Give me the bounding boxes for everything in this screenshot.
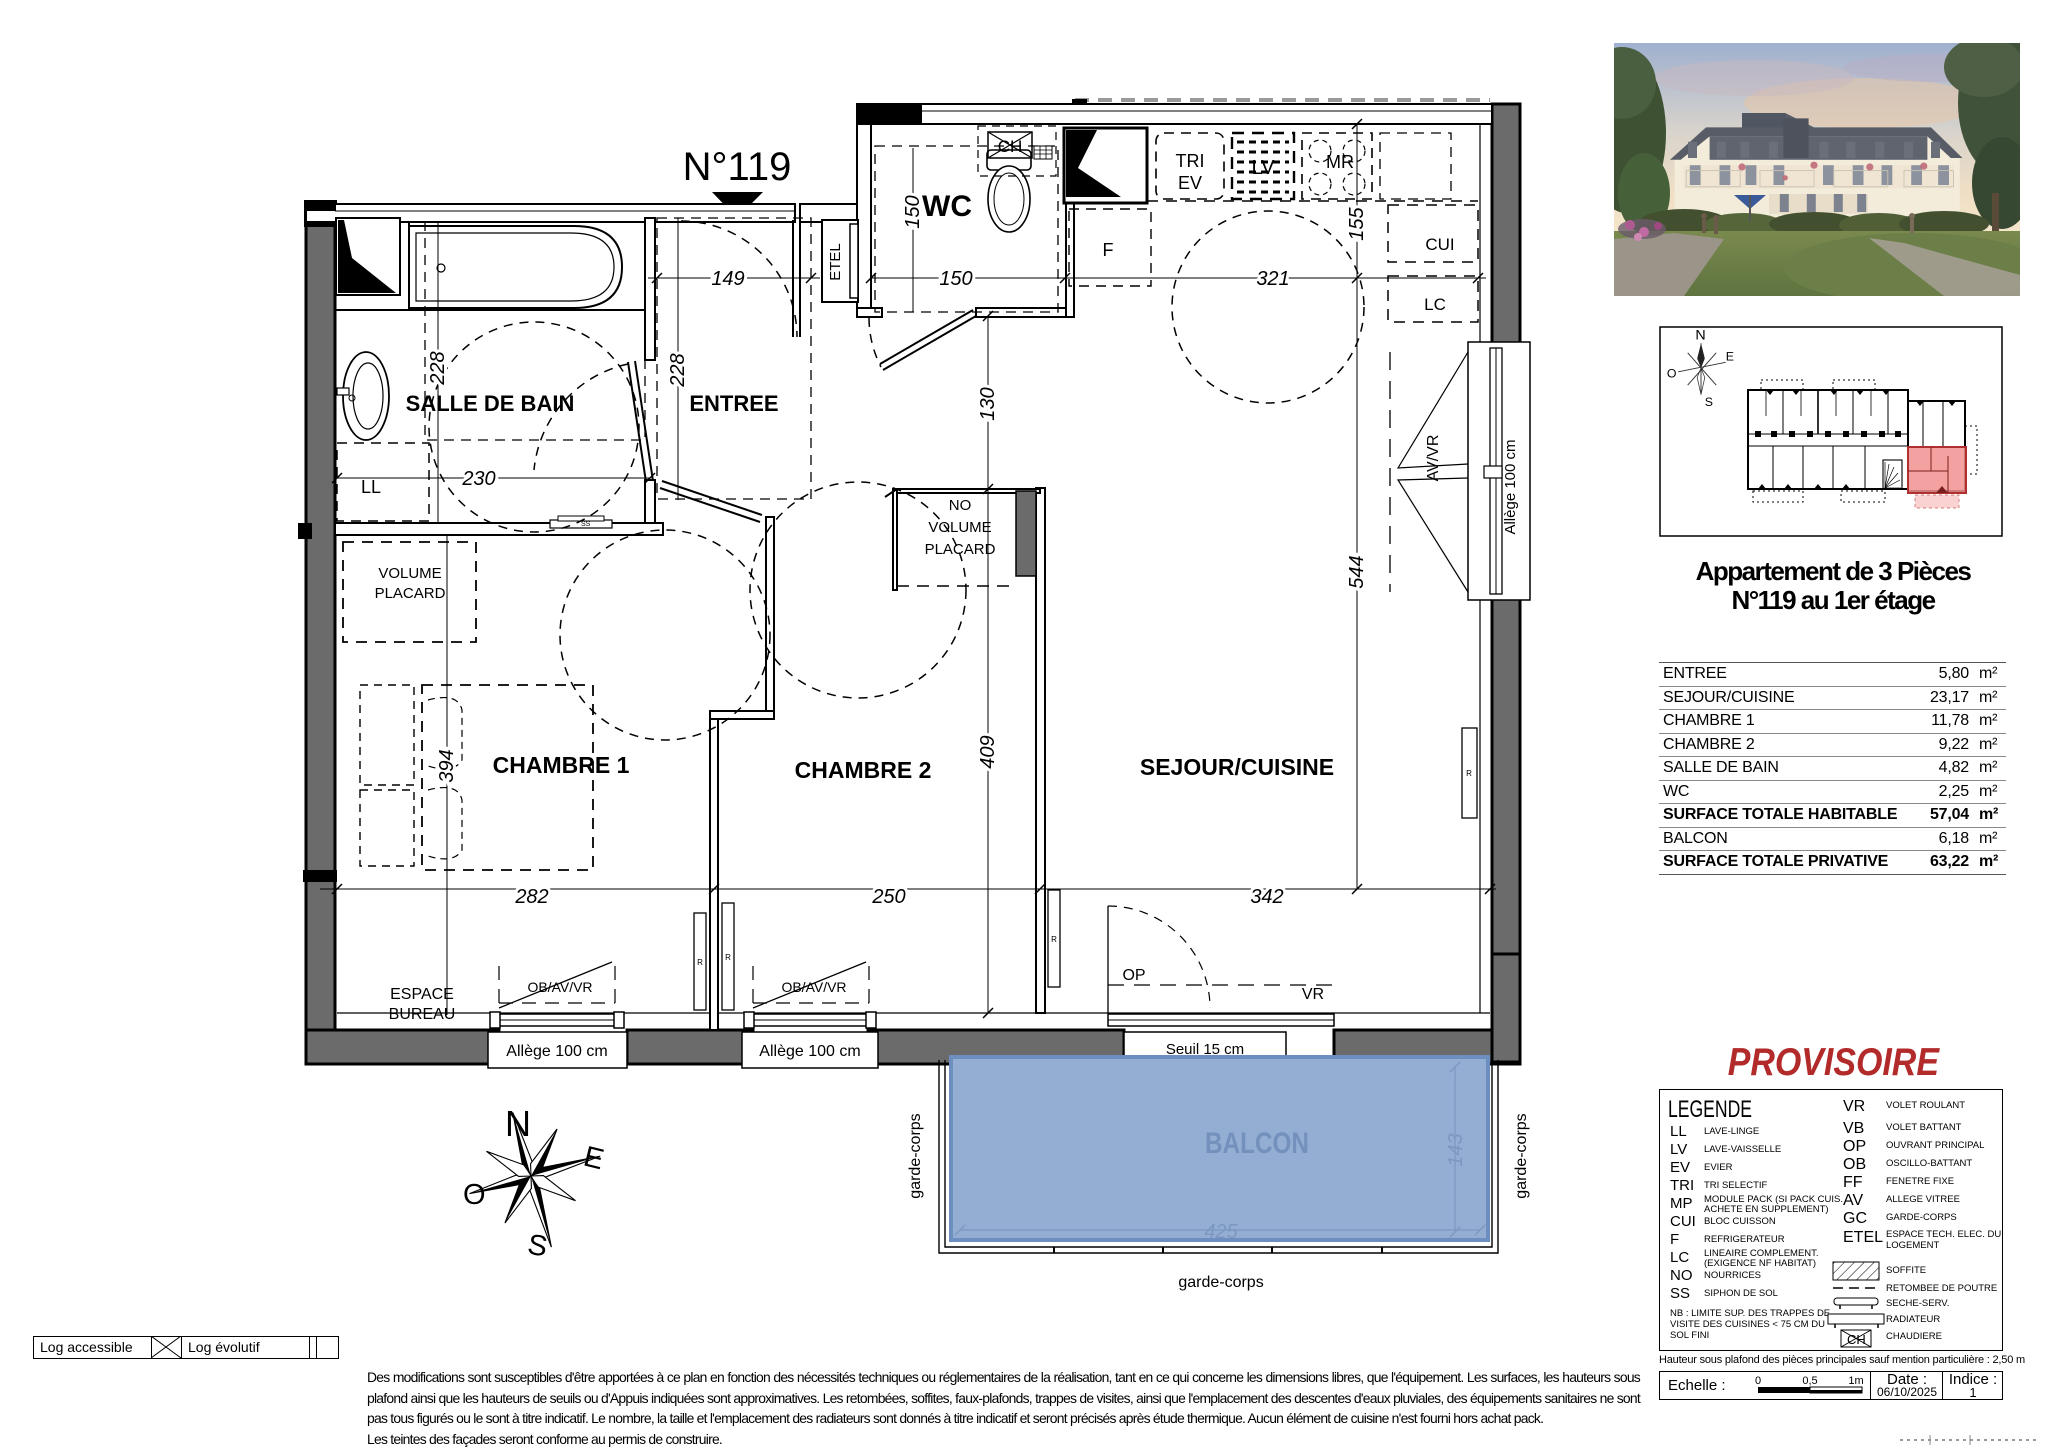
svg-text:PLACARD: PLACARD [375, 585, 446, 602]
svg-text:ESPACE: ESPACE [390, 986, 454, 1003]
svg-text:TRI: TRI [1670, 1177, 1694, 1194]
svg-text:REFRIGERATEUR: REFRIGERATEUR [1704, 1234, 1785, 1245]
svg-text:F: F [1670, 1231, 1679, 1248]
svg-text:Allège 100 cm: Allège 100 cm [1502, 439, 1519, 534]
svg-text:LEGENDE: LEGENDE [1668, 1096, 1752, 1123]
svg-text:CHAMBRE 2: CHAMBRE 2 [795, 757, 932, 783]
svg-text:OB/AV/VR: OB/AV/VR [781, 979, 846, 995]
svg-text:CH: CH [1847, 1332, 1866, 1347]
svg-text:OP: OP [1122, 967, 1145, 984]
svg-text:SS: SS [1670, 1285, 1690, 1302]
svg-text:AV: AV [1843, 1192, 1863, 1209]
svg-text:SOL FINI: SOL FINI [1670, 1330, 1709, 1341]
svg-text:544: 544 [1346, 555, 1368, 588]
svg-text:EV: EV [1178, 173, 1202, 193]
svg-text:342: 342 [1250, 886, 1283, 908]
svg-text:VOLET ROULANT: VOLET ROULANT [1886, 1100, 1965, 1111]
svg-text:LAVE-LINGE: LAVE-LINGE [1704, 1126, 1759, 1137]
svg-text:425: 425 [1204, 1221, 1238, 1243]
svg-text:BUREAU: BUREAU [389, 1006, 456, 1023]
svg-text:150: 150 [902, 195, 924, 228]
svg-text:ESPACE TECH. ELEC. DU: ESPACE TECH. ELEC. DU [1886, 1229, 2001, 1240]
svg-text:garde-corps: garde-corps [907, 1113, 924, 1198]
svg-text:AV/VR: AV/VR [1425, 435, 1442, 482]
svg-text:MP: MP [1670, 1195, 1693, 1212]
svg-text:SOFFITE: SOFFITE [1886, 1265, 1926, 1276]
svg-text:R: R [725, 953, 731, 962]
svg-text:R: R [1466, 769, 1472, 778]
svg-text:RETOMBEE DE POUTRE: RETOMBEE DE POUTRE [1886, 1283, 1997, 1294]
svg-text:VISITE DES CUISINES < 75 CM DU: VISITE DES CUISINES < 75 CM DU [1670, 1319, 1825, 1330]
svg-text:R: R [1051, 935, 1057, 944]
svg-text:OP: OP [1843, 1138, 1866, 1155]
svg-text:FENETRE FIXE: FENETRE FIXE [1886, 1176, 1954, 1187]
svg-text:VOLUME: VOLUME [378, 565, 441, 582]
svg-text:ETEL: ETEL [827, 243, 844, 281]
svg-text:ACHETE EN SUPPLEMENT): ACHETE EN SUPPLEMENT) [1704, 1204, 1829, 1215]
svg-text:TRI: TRI [1176, 151, 1205, 171]
svg-text:SS: SS [581, 521, 591, 528]
svg-text:OB: OB [1843, 1156, 1866, 1173]
svg-text:FF: FF [1843, 1174, 1863, 1191]
svg-text:S: S [1705, 395, 1713, 409]
svg-text:LL: LL [1670, 1123, 1687, 1140]
svg-text:F: F [1103, 240, 1114, 260]
svg-text:NB : LIMITE SUP. DES TRAPPES D: NB : LIMITE SUP. DES TRAPPES DE [1670, 1308, 1830, 1319]
svg-text:NOURRICES: NOURRICES [1704, 1270, 1761, 1281]
svg-text:E: E [580, 1141, 607, 1177]
svg-text:LC: LC [1424, 295, 1446, 314]
svg-text:VOLUME: VOLUME [928, 519, 991, 536]
svg-text:MR: MR [1326, 152, 1354, 172]
svg-text:VOLET BATTANT: VOLET BATTANT [1886, 1122, 1962, 1133]
svg-text:N: N [505, 1103, 531, 1144]
svg-text:OSCILLO-BATTANT: OSCILLO-BATTANT [1886, 1158, 1972, 1169]
svg-text:282: 282 [514, 886, 548, 908]
svg-text:garde-corps: garde-corps [1178, 1274, 1263, 1291]
svg-text:LC: LC [1670, 1249, 1689, 1266]
svg-text:VR: VR [1843, 1098, 1865, 1115]
svg-text:N: N [1695, 328, 1705, 344]
svg-text:EVIER: EVIER [1704, 1162, 1733, 1173]
svg-text:228: 228 [667, 353, 689, 387]
svg-text:0: 0 [1755, 1375, 1761, 1387]
svg-text:RADIATEUR: RADIATEUR [1886, 1314, 1940, 1325]
svg-text:LV: LV [1252, 157, 1276, 179]
svg-text:ALLEGE VITREE: ALLEGE VITREE [1886, 1194, 1960, 1205]
svg-text:VR: VR [1302, 986, 1324, 1003]
svg-text:E: E [1726, 349, 1734, 363]
svg-text:Allège 100 cm: Allège 100 cm [759, 1043, 860, 1060]
svg-text:SALLE DE BAIN: SALLE DE BAIN [406, 391, 575, 416]
svg-text:EV: EV [1670, 1159, 1690, 1176]
svg-text:394: 394 [436, 749, 458, 782]
svg-text:149: 149 [711, 268, 744, 290]
svg-text:Allège 100 cm: Allège 100 cm [506, 1043, 607, 1060]
svg-text:LAVE-VAISSELLE: LAVE-VAISSELLE [1704, 1144, 1781, 1155]
svg-text:143: 143 [1445, 1133, 1467, 1166]
svg-text:SECHE-SERV.: SECHE-SERV. [1886, 1298, 1949, 1309]
svg-text:O: O [463, 1179, 486, 1211]
svg-text:BALCON: BALCON [1205, 1127, 1309, 1160]
svg-text:230: 230 [461, 468, 495, 490]
svg-text:WC: WC [922, 190, 972, 223]
svg-text:ETEL: ETEL [1843, 1229, 1883, 1246]
svg-text:LV: LV [1670, 1141, 1687, 1158]
svg-text:NO: NO [949, 497, 972, 514]
svg-text:CH: CH [998, 137, 1023, 156]
svg-text:150: 150 [939, 268, 972, 290]
svg-text:OUVRANT PRINCIPAL: OUVRANT PRINCIPAL [1886, 1140, 1984, 1151]
svg-text:CHAUDIERE: CHAUDIERE [1886, 1331, 1942, 1342]
svg-text:250: 250 [871, 886, 905, 908]
svg-text:409: 409 [977, 735, 999, 768]
svg-text:VB: VB [1843, 1120, 1864, 1137]
svg-text:1m: 1m [1848, 1375, 1863, 1387]
svg-text:OB/AV/VR: OB/AV/VR [527, 979, 592, 995]
svg-text:SEJOUR/CUISINE: SEJOUR/CUISINE [1140, 754, 1334, 780]
svg-text:R: R [697, 958, 703, 967]
svg-text:BLOC CUISSON: BLOC CUISSON [1704, 1216, 1776, 1227]
svg-text:GARDE-CORPS: GARDE-CORPS [1886, 1212, 1957, 1223]
svg-text:N°119: N°119 [683, 145, 792, 189]
svg-text:TRI SELECTIF: TRI SELECTIF [1704, 1180, 1768, 1191]
svg-text:ENTREE: ENTREE [689, 391, 778, 416]
svg-text:garde-corps: garde-corps [1513, 1113, 1530, 1198]
svg-text:CUI: CUI [1670, 1213, 1696, 1230]
svg-text:228: 228 [427, 351, 449, 385]
svg-text:LOGEMENT: LOGEMENT [1886, 1240, 1940, 1251]
svg-text:LL: LL [361, 477, 381, 497]
svg-text:NO: NO [1670, 1267, 1693, 1284]
svg-text:O: O [1667, 367, 1677, 381]
svg-text:321: 321 [1256, 268, 1289, 290]
svg-text:130: 130 [977, 387, 999, 420]
svg-text:0,5: 0,5 [1802, 1375, 1817, 1387]
svg-text:S: S [525, 1229, 550, 1264]
svg-text:GC: GC [1843, 1210, 1867, 1227]
svg-text:155: 155 [1346, 206, 1368, 240]
svg-text:(EXIGENCE NF HABITAT): (EXIGENCE NF HABITAT) [1704, 1258, 1816, 1269]
svg-text:CHAMBRE 1: CHAMBRE 1 [493, 752, 630, 778]
svg-text:CUI: CUI [1425, 235, 1454, 254]
svg-text:SIPHON DE SOL: SIPHON DE SOL [1704, 1288, 1778, 1299]
